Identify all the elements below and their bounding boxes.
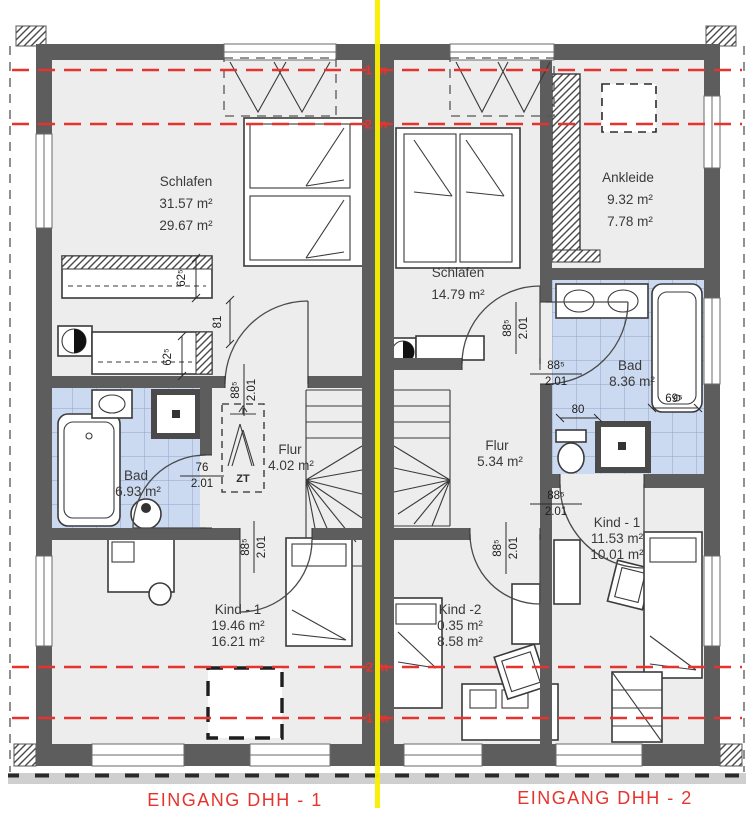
bed-kind2 [390,598,442,708]
label-kind1-right: Kind - 1 11.53 m² 10.01 m² [590,515,644,562]
dim-value: 81 [212,316,224,329]
dim-value: 88⁵ [547,360,565,372]
wardrobe-kind1-left [208,668,282,738]
room-name: Flur [485,438,509,453]
floor-plan-drawing: ZT [0,0,753,819]
room-name: Kind - 1 [215,602,262,617]
bed-schlafen2 [396,128,520,268]
room-area: 5.34 m² [477,454,523,469]
attic-ladder-label: ZT [236,473,250,485]
toilet-bad2 [556,430,586,473]
room-name: Bad [124,468,148,483]
caption-eingang-dhh2: EINGANG DHH - 2 [517,788,693,808]
label-kind2: Kind -2 0.35 m² 8.58 m² [437,602,483,649]
room-name: Bad [618,358,642,373]
dim-value: 62⁵ [176,269,188,287]
dim-value: 62⁵ [162,348,174,366]
room-area: 10.01 m² [590,547,644,562]
dim-value: 80 [572,404,585,416]
dim-value: 88⁵ [547,490,565,502]
room-area: 19.46 m² [211,618,265,633]
dresser-kind1-right [612,672,662,742]
label-schlafen1: Schlafen 31.57 m² 29.67 m² [159,174,213,233]
dim-value: 2.01 [508,537,520,559]
dim-value: 2.01 [256,536,268,558]
bed-kind1-left [286,538,352,646]
dim-value: 2.01 [545,506,567,518]
room-area: 16.21 m² [211,634,265,649]
shower-bad2 [598,424,648,470]
room-area: 7.78 m² [607,214,653,229]
wardrobe-kind1-right [554,540,580,604]
room-area: 11.53 m² [591,531,644,546]
washbasins-bad2 [556,284,648,318]
dim-value: 88⁵ [502,319,514,337]
label-kind1-left: Kind - 1 19.46 m² 16.21 m² [211,602,265,649]
wardrobe-kind2 [512,584,540,644]
dim-value: 2.01 [518,317,530,339]
dim-value: 88⁵ [230,381,242,399]
floor-plan-page: ZT [0,0,753,819]
room-name: Schlafen [160,174,213,189]
dim-value: 88⁵ [492,539,504,557]
washstand-schlafen1 [58,326,92,356]
room-name: Kind -2 [439,602,482,617]
bathtub-bad1 [58,414,120,526]
room-name: Ankleide [602,170,654,185]
room-name: Schlafen [432,265,485,280]
dim-value: 88⁵ [240,538,252,556]
bed-schlafen1 [244,118,366,266]
room-name: Kind - 1 [594,515,641,530]
bed-kind1-right [644,532,702,678]
sideboard-schlafen2 [416,336,484,360]
room-area: 0.35 m² [437,618,483,633]
room-area: 8.36 m² [609,374,655,389]
wardrobe-schlafen1-top [62,256,212,298]
room-area: 8.58 m² [437,634,483,649]
label-ankleide: Ankleide 9.32 m² 7.78 m² [602,170,654,229]
dim-value: 2.01 [246,379,258,401]
dim-value: 76 [196,462,209,474]
wardrobe-schlafen1-lower [92,332,212,374]
dim-value: 69⁵ [665,393,683,405]
caption-eingang-dhh1: EINGANG DHH - 1 [147,790,323,810]
toilet-bad1 [131,499,161,529]
room-area: 9.32 m² [607,192,653,207]
room-name: Flur [278,442,302,457]
room-area: 6.93 m² [115,484,161,499]
room-area: 29.67 m² [159,218,213,233]
shower-bad1 [154,392,198,436]
washbasin-bad1 [92,390,132,418]
dim-value: 2.01 [545,376,567,388]
dim-value: 2.01 [191,478,213,490]
unit-divider-line [375,0,380,808]
room-area: 31.57 m² [159,196,213,211]
room-area: 4.02 m² [268,458,314,473]
room-area: 14.79 m² [431,287,485,302]
